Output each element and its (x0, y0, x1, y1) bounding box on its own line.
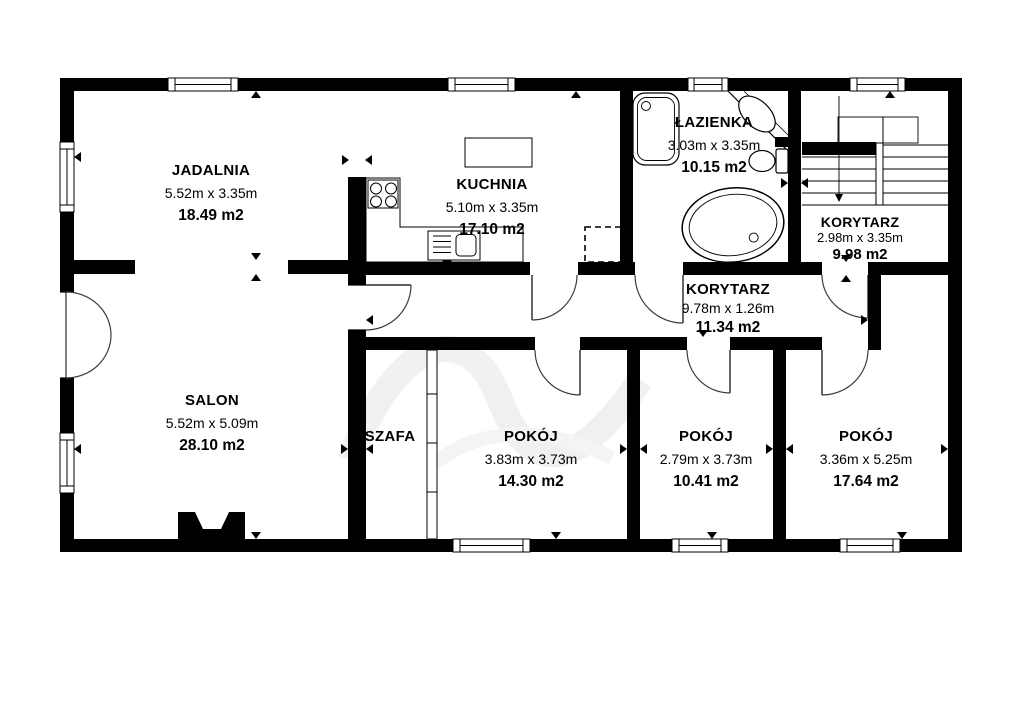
room-area: 10.15 m2 (668, 157, 761, 179)
room-area: 28.10 m2 (166, 435, 259, 457)
room-name: JADALNIA (165, 160, 258, 182)
window (850, 78, 905, 91)
door-kuchnia (532, 275, 577, 320)
room-dims: 3.83m x 3.73m (485, 448, 578, 471)
room-dims: 2.79m x 3.73m (660, 448, 753, 471)
room-area: 10.41 m2 (660, 471, 753, 493)
room-name: KORYTARZ (817, 214, 903, 230)
door-lazienka (635, 275, 683, 323)
window (453, 539, 530, 552)
room-name: SZAFA (365, 426, 416, 448)
room-dims: 5.10m x 3.35m (446, 196, 539, 219)
room-area: 9.98 m2 (817, 246, 903, 263)
floor-plan: JADALNIA 5.52m x 3.35m 18.49 m2 KUCHNIA … (0, 0, 1024, 724)
room-label-pokoj-1: POKÓJ 3.83m x 3.73m 14.30 m2 (485, 426, 578, 493)
room-name: POKÓJ (485, 426, 578, 448)
room-name: ŁAZIENKA (668, 112, 761, 134)
room-label-lazienka: ŁAZIENKA 3.03m x 3.35m 10.15 m2 (668, 112, 761, 179)
window (840, 539, 900, 552)
room-label-korytarz: KORYTARZ 9.78m x 1.26m 11.34 m2 (682, 280, 775, 337)
double-entry-door (60, 292, 111, 378)
room-label-pokoj-3: POKÓJ 3.36m x 5.25m 17.64 m2 (820, 426, 913, 493)
room-label-kuchnia: KUCHNIA 5.10m x 3.35m 17.10 m2 (446, 174, 539, 241)
room-dims: 3.36m x 5.25m (820, 448, 913, 471)
door-pokoj-1 (535, 350, 580, 395)
room-name: KUCHNIA (446, 174, 539, 196)
room-area: 18.49 m2 (165, 205, 258, 227)
kitchen-island (465, 138, 532, 167)
room-name: POKÓJ (820, 426, 913, 448)
bathtub-icon (678, 182, 788, 268)
room-dims: 5.52m x 3.35m (165, 182, 258, 205)
window (688, 78, 728, 91)
window (60, 433, 74, 493)
door-pokoj-3 (822, 350, 868, 395)
room-label-szafa: SZAFA (365, 426, 416, 448)
room-label-korytarz-gorny: KORYTARZ 2.98m x 3.35m 9.98 m2 (817, 214, 903, 263)
room-label-jadalnia: JADALNIA 5.52m x 3.35m 18.49 m2 (165, 160, 258, 227)
room-area: 17.10 m2 (446, 219, 539, 241)
room-area: 11.34 m2 (682, 318, 775, 337)
room-area: 17.64 m2 (820, 471, 913, 493)
room-label-salon: SALON 5.52m x 5.09m 28.10 m2 (166, 390, 259, 457)
floor-plan-drawing (0, 0, 1024, 724)
room-dims: 9.78m x 1.26m (682, 299, 775, 318)
window (60, 142, 74, 212)
window (672, 539, 728, 552)
room-dims: 5.52m x 5.09m (166, 412, 259, 435)
door-pokoj-2 (687, 350, 730, 393)
stove-icon (368, 180, 398, 208)
room-label-pokoj-2: POKÓJ 2.79m x 3.73m 10.41 m2 (660, 426, 753, 493)
room-area: 14.30 m2 (485, 471, 578, 493)
window (168, 78, 238, 91)
fireplace-icon (178, 512, 245, 539)
door-salon-korytarz (348, 285, 411, 330)
room-name: SALON (166, 390, 259, 412)
window (448, 78, 515, 91)
room-dims: 2.98m x 3.35m (817, 230, 903, 246)
wardrobe-sliding-doors (427, 350, 437, 539)
planned-appliance-dashed (585, 227, 622, 262)
room-name: POKÓJ (660, 426, 753, 448)
room-name: KORYTARZ (682, 280, 775, 299)
room-dims: 3.03m x 3.35m (668, 134, 761, 157)
